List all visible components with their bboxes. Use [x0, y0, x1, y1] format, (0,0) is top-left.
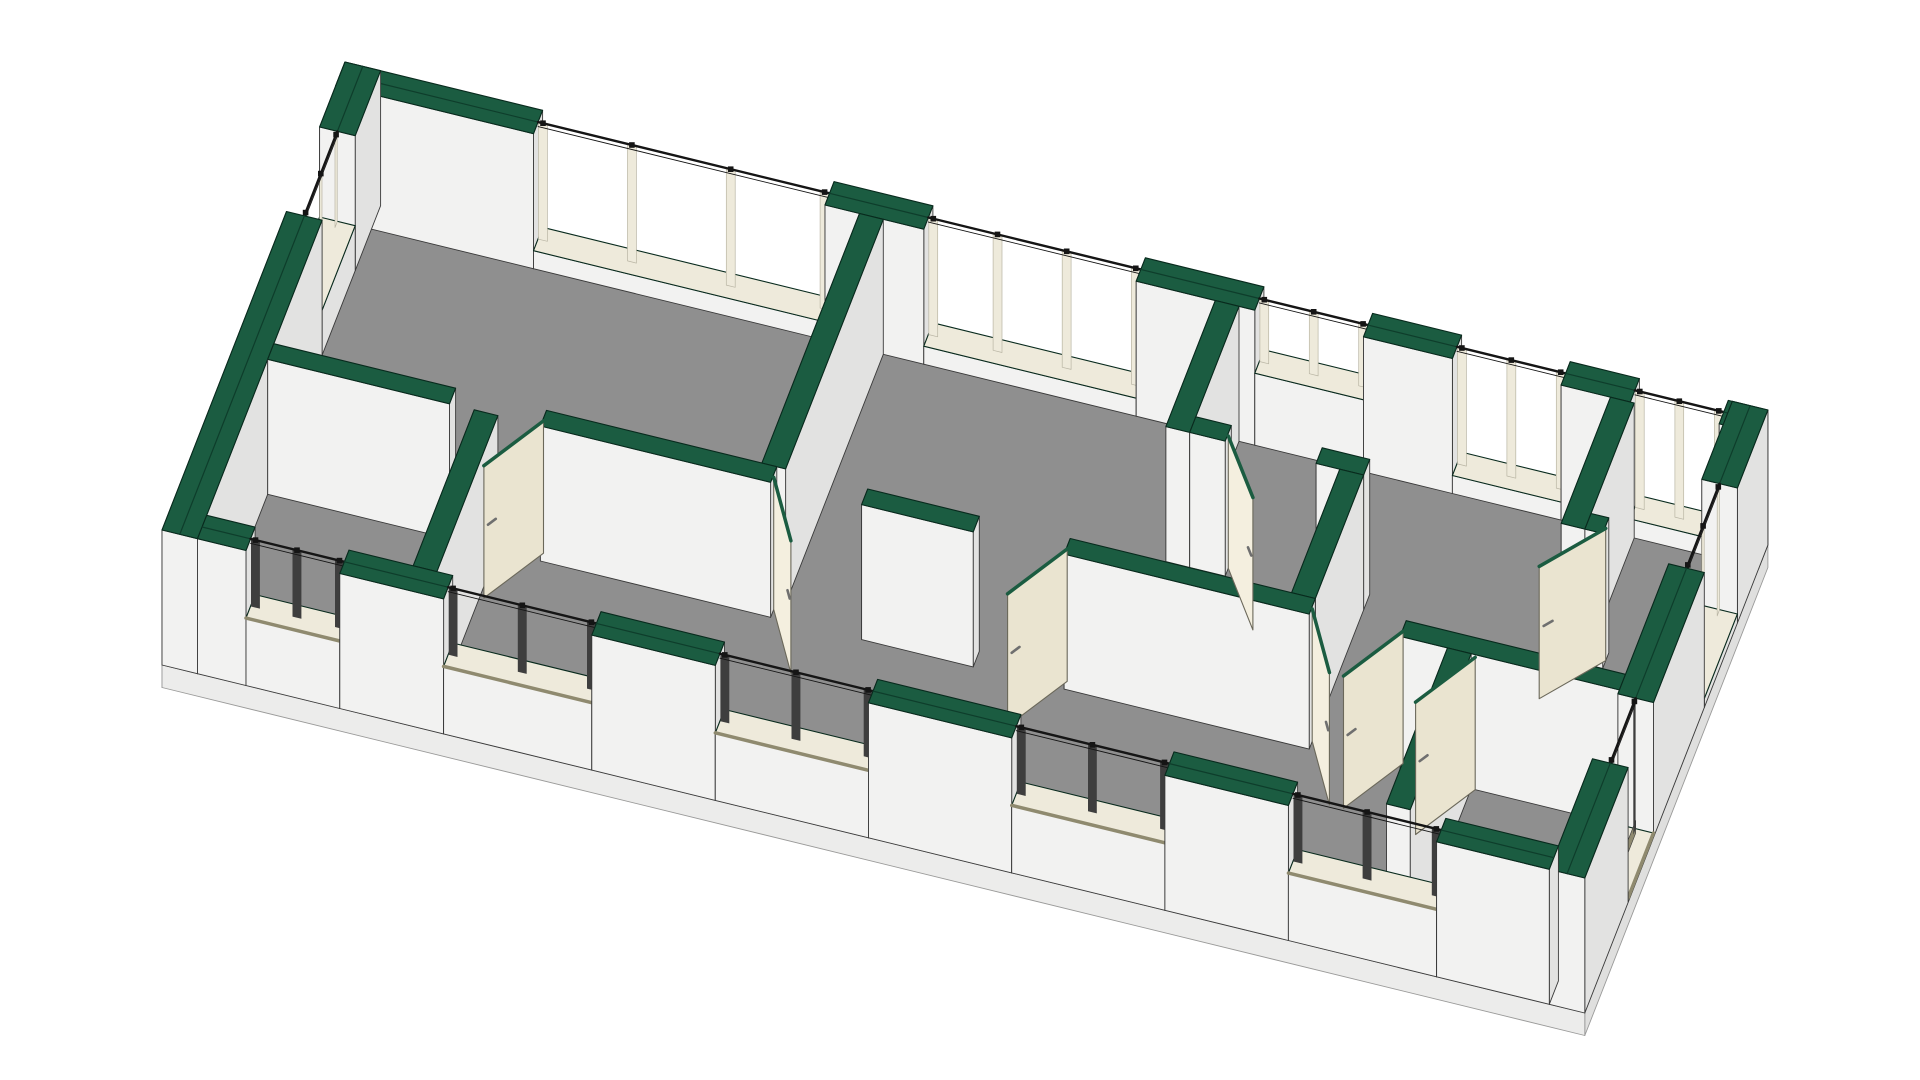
exterior-wall-back-seg1-mullion-cut-post — [728, 166, 734, 172]
exterior-wall-right-gable-seg3-mullion-cut-post — [1632, 699, 1638, 705]
exterior-wall-front-seg10-face-right — [1549, 846, 1558, 1004]
exterior-wall-right-gable-seg1-mullion-cut-post — [1685, 562, 1691, 568]
exterior-wall-right-gable-seg3-frame-post — [1633, 699, 1635, 835]
partition-right-a-face-front — [1166, 427, 1190, 568]
exterior-wall-front-seg5-mullion-cut-post — [722, 652, 728, 658]
exterior-wall-front-seg3-frame-post — [518, 604, 527, 674]
exterior-wall-back-seg1-glass-cut-line2 — [538, 127, 829, 198]
partition-right-b-face-front — [1190, 432, 1226, 576]
exterior-wall-back-seg5-mullion-cut-post — [1311, 309, 1317, 315]
exterior-wall-back-seg3-glass-cut-line2 — [928, 222, 1140, 274]
exterior-wall-front-seg7-frame-post — [1088, 744, 1097, 814]
exterior-wall-back-seg1-frame-post — [726, 168, 735, 287]
exterior-wall-back-seg5-frame-post — [1309, 311, 1318, 376]
exterior-wall-left-gable-seg1-frame-post — [335, 132, 337, 228]
exterior-wall-front-seg9-mullion-cut-post — [1295, 792, 1301, 798]
partition-right-c-face-right — [1364, 459, 1370, 610]
exterior-wall-back-seg3-mullion-cut-post — [1064, 249, 1070, 255]
exterior-wall-back-seg7-mullion-cut-post — [1459, 345, 1465, 351]
exterior-wall-back-seg9-frame-post — [1675, 400, 1684, 519]
exterior-wall-back-seg3-mullion-cut-post — [931, 216, 937, 222]
exterior-wall-back-seg3-frame-post — [929, 218, 938, 337]
exterior-wall-front-seg7-mullion-cut-post — [1019, 725, 1025, 731]
exterior-wall-front-seg5-frame-post — [792, 671, 801, 741]
exterior-wall-back-seg3-frame-post — [1062, 250, 1071, 369]
exterior-wall-back-seg1-glass-cut-line — [538, 122, 829, 193]
exterior-wall-front-seg10-face-front — [1437, 842, 1550, 1005]
exterior-wall-back-seg6-face-front — [1364, 337, 1453, 494]
exterior-wall-front-seg1-frame-post — [251, 539, 260, 609]
exterior-wall-left-gable-seg1-mullion-cut-post — [318, 171, 324, 177]
exterior-wall-back-seg9-frame-post — [1635, 390, 1644, 509]
exterior-wall-front-seg5-mullion-cut-post — [793, 670, 799, 676]
exterior-wall-back-seg7-mullion-cut-post — [1509, 357, 1515, 363]
exterior-wall-front-seg7-mullion-cut-post — [1090, 742, 1096, 748]
exterior-wall-back-seg9-mullion-cut-post — [1637, 389, 1643, 395]
bim-3d-cutaway-view — [0, 0, 1920, 1080]
exterior-wall-right-gable-seg3-mullion-cut-post — [1609, 757, 1615, 763]
exterior-wall-back-seg1-mullion-cut-post — [629, 142, 635, 148]
exterior-wall-front-seg7-frame-post — [1017, 726, 1026, 796]
exterior-wall-right-gable-seg1-mullion-cut-post — [1700, 523, 1706, 529]
exterior-wall-back-seg1-mullion-cut-post — [540, 120, 546, 126]
exterior-wall-front-seg9-mullion-cut-post — [1364, 809, 1370, 815]
exterior-wall-front-seg3-frame-post — [449, 587, 458, 657]
exterior-wall-back-seg5-mullion-cut-post — [1262, 297, 1268, 303]
floor-plan-3d-viewport[interactable] — [0, 0, 1920, 1080]
exterior-wall-back-seg9-mullion-cut-post — [1716, 408, 1722, 414]
exterior-wall-back-seg1-mullion-cut-post — [822, 189, 828, 195]
exterior-wall-back-seg3-glass-cut-line — [928, 218, 1140, 270]
exterior-wall-back-seg3-mullion-cut-post — [1133, 266, 1139, 272]
exterior-wall-back-seg7-frame-post — [1458, 347, 1467, 466]
exterior-wall-front-seg7-mullion-cut-post — [1162, 760, 1168, 766]
corridor-wall-c-face-front — [862, 505, 974, 667]
exterior-wall-back-seg9-mullion-cut-post — [1677, 398, 1683, 404]
exterior-wall-front-seg1-mullion-cut-post — [253, 537, 259, 543]
exterior-wall-front-seg3-mullion-cut-post — [520, 603, 526, 609]
exterior-wall-front-seg9-frame-post — [1363, 811, 1372, 881]
exterior-wall-front-seg9-mullion-cut-post — [1434, 826, 1440, 832]
exterior-wall-back-seg7-mullion-cut-post — [1558, 369, 1564, 375]
exterior-wall-front-seg3-mullion-cut-post — [589, 619, 595, 625]
exterior-wall-front-seg5-mullion-cut-post — [865, 687, 871, 693]
exterior-wall-front-seg1-frame-post — [293, 549, 302, 619]
exterior-wall-right-gable-seg1-frame-post — [1717, 484, 1719, 616]
exterior-wall-front-seg0-face-front — [198, 539, 247, 686]
exterior-wall-left-gable-seg1-mullion-cut-post — [333, 132, 339, 138]
exterior-wall-back-seg1-frame-post — [628, 144, 637, 263]
exterior-wall-front-seg3-mullion-cut-post — [450, 586, 456, 592]
exterior-wall-back-seg7-frame-post — [1507, 359, 1516, 478]
exterior-wall-front-seg1-mullion-cut-post — [337, 558, 343, 564]
exterior-wall-front-seg9-frame-post — [1294, 794, 1303, 864]
exterior-wall-right-gable-seg1-mullion-cut-post — [1716, 484, 1722, 490]
exterior-wall-back-seg3-mullion-cut-post — [995, 232, 1001, 238]
exterior-wall-front-seg1-mullion-cut-post — [294, 547, 300, 553]
exterior-wall-front-seg2-face-front — [340, 574, 444, 734]
exterior-wall-front-seg5-frame-post — [720, 654, 729, 724]
exterior-wall-back-seg5-mullion-cut-post — [1360, 321, 1366, 327]
exterior-wall-back-seg3-frame-post — [993, 233, 1002, 352]
exterior-wall-back-seg5-frame-post — [1260, 299, 1269, 364]
corridor-wall-c-face-right — [973, 516, 979, 667]
exterior-wall-left-gable-seg2-face-front — [162, 530, 198, 674]
exterior-wall-back-seg1-frame-post — [539, 122, 548, 241]
exterior-wall-left-gable-seg1-mullion-cut-post — [303, 210, 309, 216]
